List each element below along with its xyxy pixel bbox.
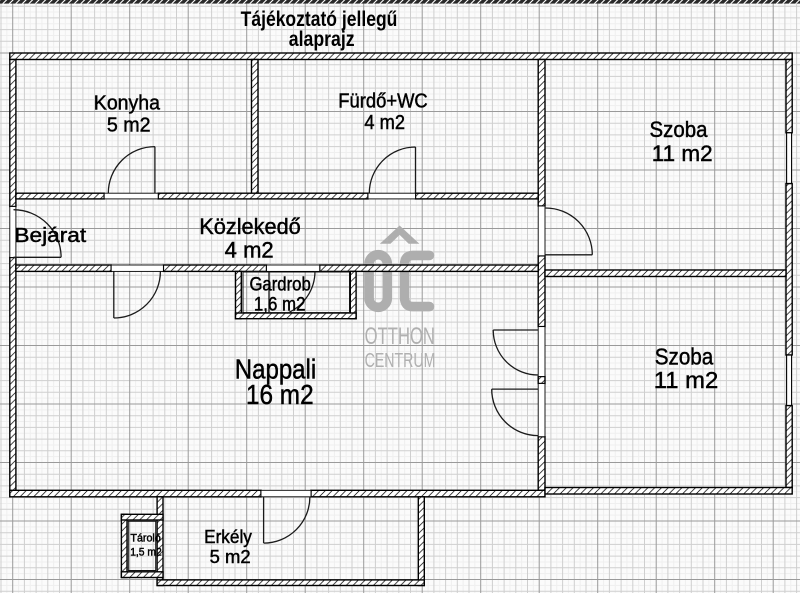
svg-text:1,5 m2: 1,5 m2 xyxy=(130,546,162,558)
svg-text:Közlekedő: Közlekedő xyxy=(199,214,301,239)
svg-text:Erkély: Erkély xyxy=(204,527,252,547)
svg-text:5 m2: 5 m2 xyxy=(210,547,251,567)
svg-text:16 m2: 16 m2 xyxy=(246,379,314,410)
svg-text:Szoba: Szoba xyxy=(655,344,714,370)
svg-text:5 m2: 5 m2 xyxy=(107,114,151,136)
svg-text:Tároló: Tároló xyxy=(130,533,160,545)
svg-text:1,6 m2: 1,6 m2 xyxy=(254,294,306,315)
svg-text:11 m2: 11 m2 xyxy=(654,367,719,393)
svg-text:4 m2: 4 m2 xyxy=(225,238,274,263)
svg-text:Gardrob: Gardrob xyxy=(249,274,310,295)
svg-text:Szoba: Szoba xyxy=(650,117,708,142)
svg-text:Fürdő+WC: Fürdő+WC xyxy=(338,91,427,113)
svg-text:OTTHON: OTTHON xyxy=(365,324,435,350)
svg-text:4 m2: 4 m2 xyxy=(364,112,405,134)
svg-text:CENTRUM: CENTRUM xyxy=(365,350,436,372)
svg-text:Konyha: Konyha xyxy=(94,92,161,114)
svg-text:alaprajz: alaprajz xyxy=(289,28,355,51)
svg-text:Bejárat: Bejárat xyxy=(14,225,86,247)
svg-text:11 m2: 11 m2 xyxy=(652,141,713,166)
